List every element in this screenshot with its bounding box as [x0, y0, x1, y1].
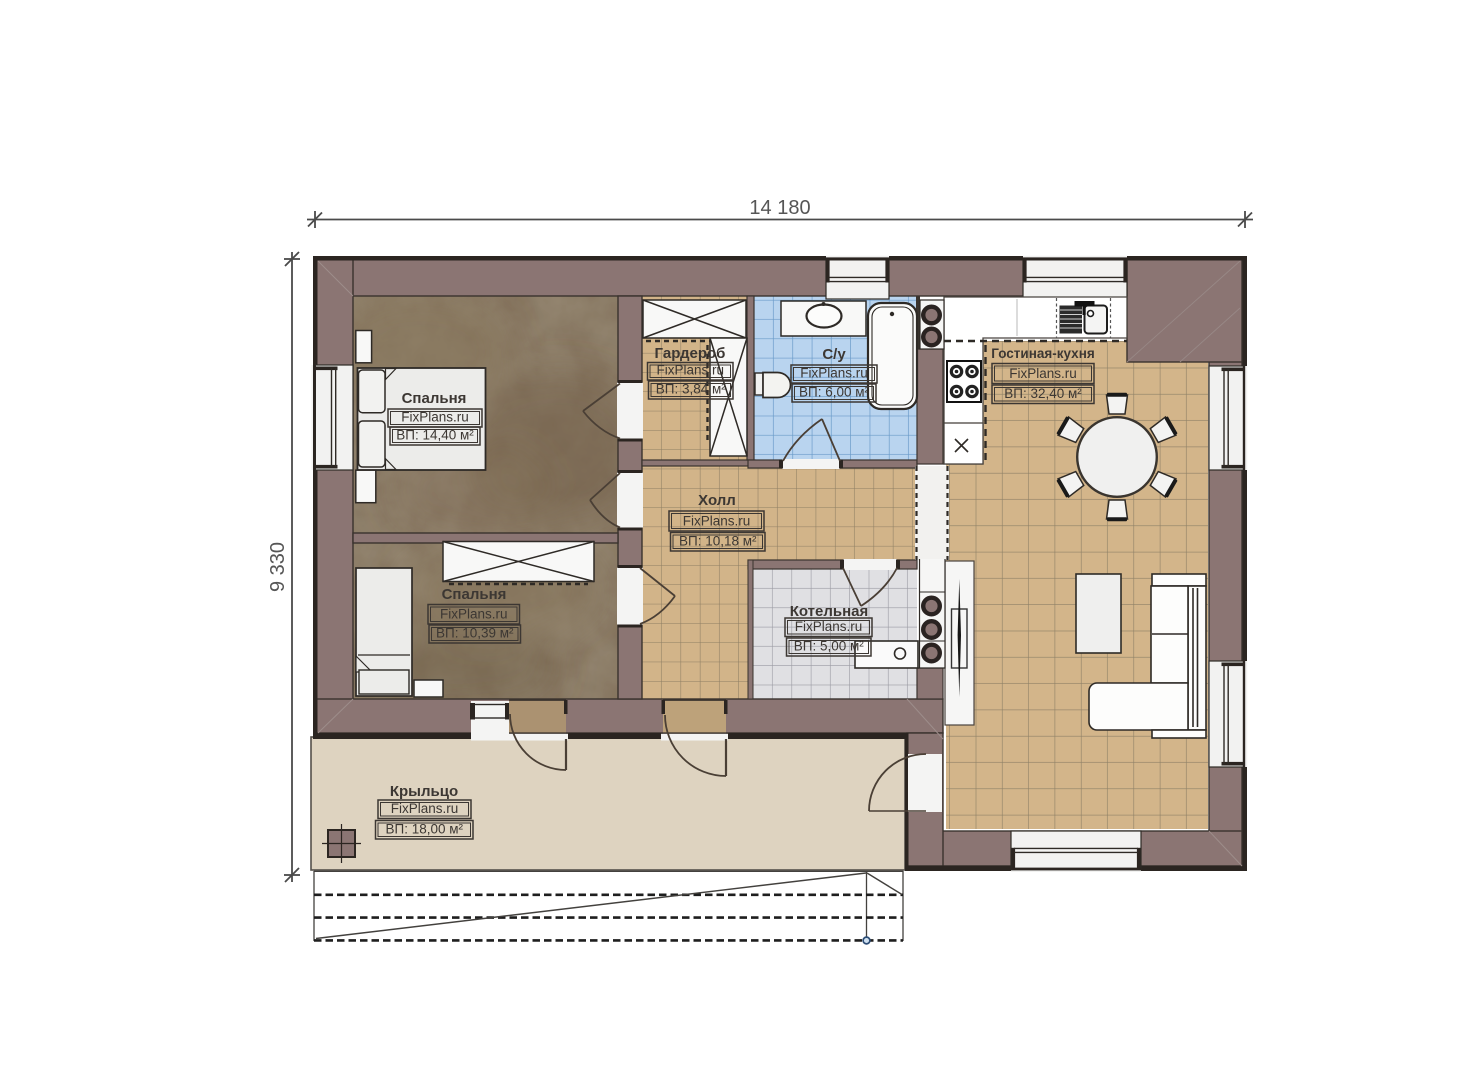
svg-text:FixPlans.ru: FixPlans.ru: [440, 607, 508, 622]
svg-text:ВП: 10,39 м²: ВП: 10,39 м²: [436, 626, 514, 641]
svg-text:ВП: 5,00 м²: ВП: 5,00 м²: [794, 639, 865, 654]
svg-text:С/у: С/у: [822, 346, 846, 363]
svg-text:Спальня: Спальня: [402, 390, 467, 407]
svg-text:ВП: 6,00 м²: ВП: 6,00 м²: [799, 385, 870, 400]
svg-text:ВП: 18,00 м²: ВП: 18,00 м²: [385, 822, 463, 837]
svg-text:Гардероб: Гардероб: [655, 345, 726, 362]
svg-text:FixPlans.ru: FixPlans.ru: [683, 514, 751, 529]
svg-text:Крыльцо: Крыльцо: [390, 783, 458, 800]
svg-text:Гостиная-кухня: Гостиная-кухня: [991, 346, 1094, 361]
svg-text:FixPlans.ru: FixPlans.ru: [800, 366, 868, 381]
svg-text:Холл: Холл: [698, 492, 736, 509]
svg-text:FixPlans.ru: FixPlans.ru: [795, 619, 863, 634]
svg-text:FixPlans.ru: FixPlans.ru: [656, 363, 724, 378]
svg-text:FixPlans.ru: FixPlans.ru: [401, 410, 469, 425]
svg-text:Спальня: Спальня: [442, 586, 507, 603]
svg-text:9 330: 9 330: [267, 542, 289, 592]
svg-text:14 180: 14 180: [749, 197, 810, 219]
svg-text:ВП: 10,18 м²: ВП: 10,18 м²: [679, 534, 757, 549]
svg-text:ВП: 32,40 м²: ВП: 32,40 м²: [1004, 386, 1082, 401]
svg-text:ВП: 3,84 м²: ВП: 3,84 м²: [656, 382, 727, 397]
svg-text:FixPlans.ru: FixPlans.ru: [391, 801, 459, 816]
svg-text:FixPlans.ru: FixPlans.ru: [1009, 366, 1077, 381]
svg-text:ВП: 14,40 м²: ВП: 14,40 м²: [396, 428, 474, 443]
